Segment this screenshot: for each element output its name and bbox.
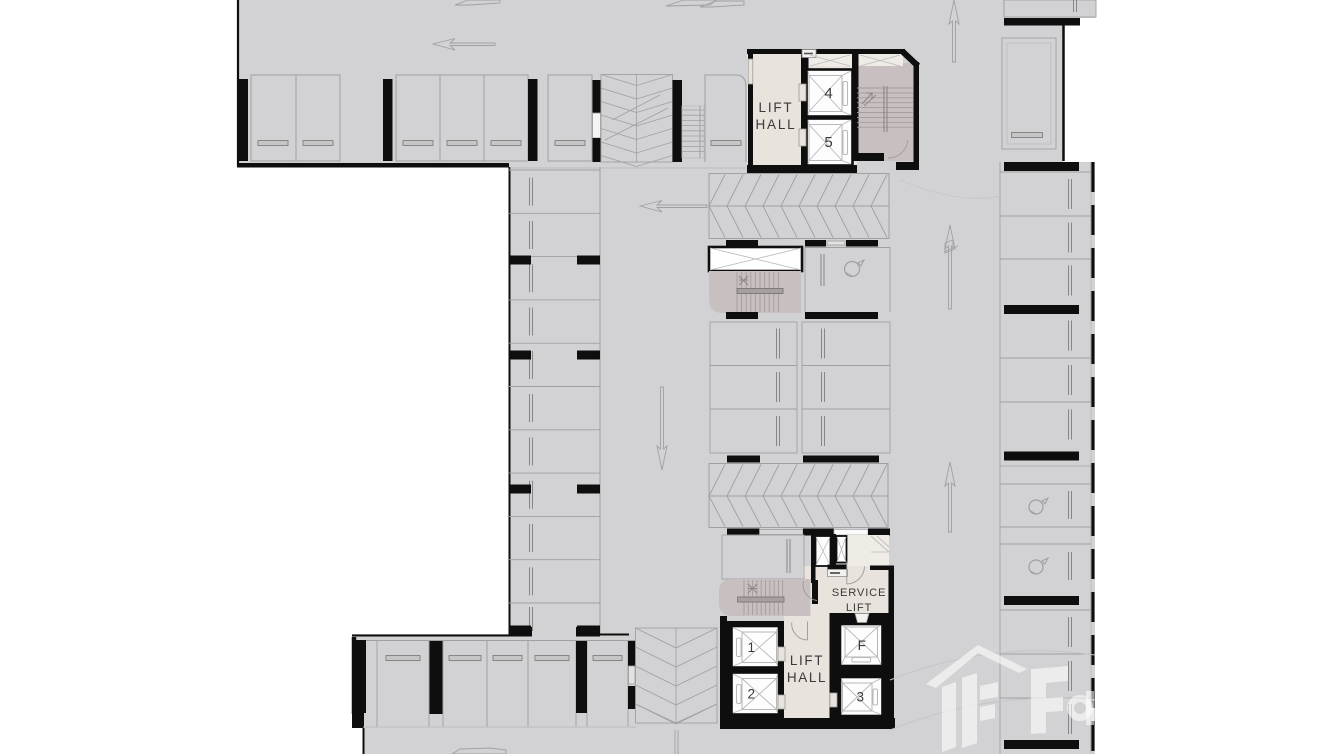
svg-text:LIFT: LIFT [759, 100, 794, 115]
svg-text:SERVICE: SERVICE [832, 587, 887, 599]
svg-text:LIFT: LIFT [846, 602, 872, 614]
svg-text:2: 2 [747, 687, 755, 702]
svg-text:3: 3 [856, 690, 864, 705]
svg-text:1: 1 [747, 640, 755, 655]
svg-text:F: F [858, 638, 866, 653]
svg-text:4: 4 [824, 85, 832, 102]
svg-text:HALL: HALL [756, 117, 797, 132]
svg-text:5: 5 [824, 134, 832, 151]
svg-text:HALL: HALL [787, 670, 827, 685]
svg-text:LIFT: LIFT [790, 653, 824, 668]
